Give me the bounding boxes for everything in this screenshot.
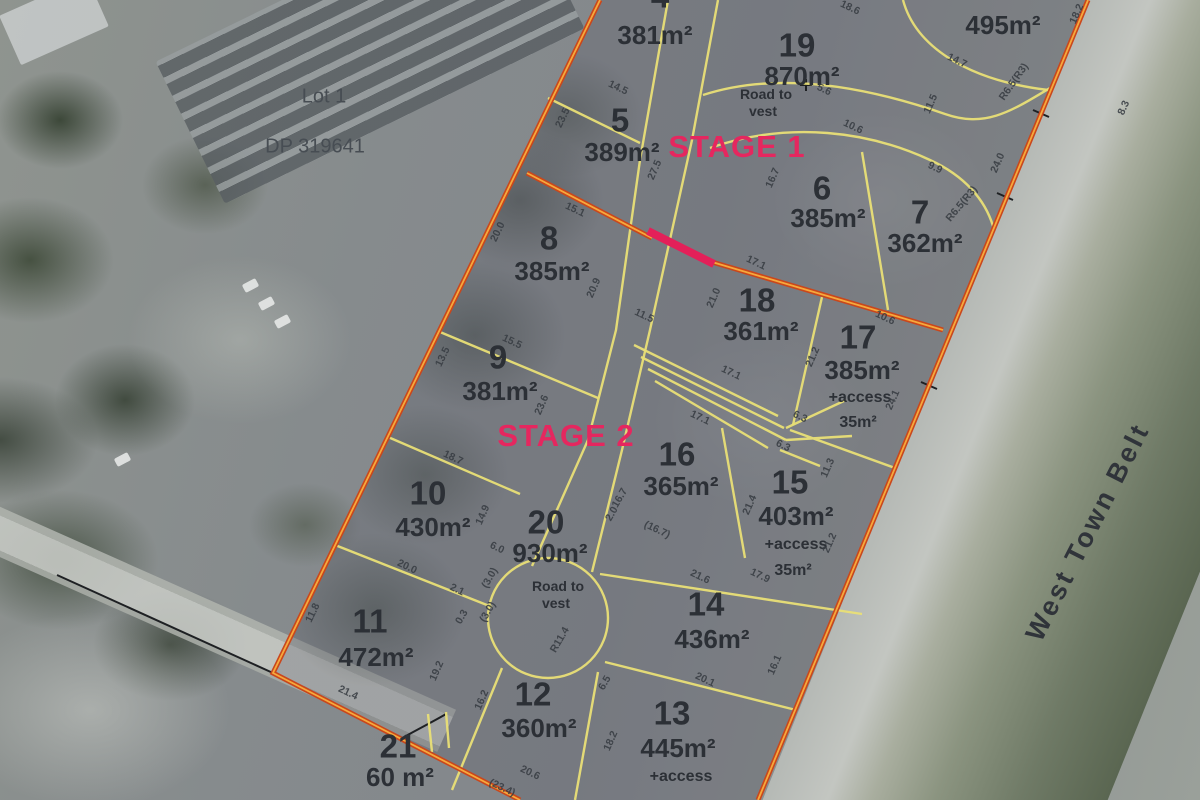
stage1-label: STAGE 1: [668, 129, 805, 165]
lot-sub-+access: +access: [650, 769, 713, 785]
lot-number-9: 9: [489, 341, 507, 374]
road-note: Road to: [532, 579, 584, 593]
dimension: 6.5: [597, 674, 613, 692]
lot-sub-+access: +access: [829, 390, 892, 406]
lot-sub-35m²: 35m²: [774, 563, 811, 579]
lot-area-385m²: 385m²: [514, 258, 589, 284]
lot-number-16: 16: [659, 438, 696, 471]
lot-area-360m²: 360m²: [501, 715, 576, 741]
road-note: vest: [542, 596, 570, 610]
parcel-label-lot1: Lot 1: [302, 86, 346, 109]
lot-area-365m²: 365m²: [643, 473, 718, 499]
lot-number-18: 18: [739, 284, 776, 317]
dimension: 20.6: [519, 764, 542, 782]
subdivision-plan-screenshot: { "colors": { "stage_text": "#e5275f", "…: [0, 0, 1200, 800]
lot-number-20: 20: [528, 506, 565, 539]
dimension: 21.0: [705, 287, 723, 310]
lot-area-445m²: 445m²: [640, 735, 715, 761]
dimension: (3.0): [478, 600, 498, 624]
dimension: 8.3: [1116, 99, 1132, 117]
dimension: 19.2: [428, 660, 446, 683]
lot-area-930m²: 930m²: [512, 540, 587, 566]
dimension: 17.9: [749, 567, 772, 585]
dimension: 11.5: [633, 307, 655, 325]
lot-number-19: 19: [779, 29, 816, 62]
dimension: 17.1: [720, 364, 743, 382]
lot-area-436m²: 436m²: [674, 626, 749, 652]
dimension: 0.3: [454, 608, 470, 626]
dimension: 10.6: [842, 118, 865, 136]
dimension: 21.2: [804, 346, 822, 369]
lot-number-21: 21: [380, 730, 417, 763]
dimension: R11.4: [549, 625, 572, 654]
stage2-label: STAGE 2: [497, 418, 634, 454]
lot-area-403m²: 403m²: [758, 503, 833, 529]
dimension: 21.4: [741, 494, 759, 517]
dimension: R6.5(R3): [997, 62, 1030, 103]
dimension: 21.6: [689, 568, 712, 586]
lot-number-12: 12: [515, 678, 552, 711]
dimension: 6.0: [488, 540, 506, 556]
dimension: 18.6: [839, 0, 862, 17]
lot-area-381m²: 381m²: [462, 378, 537, 404]
dimension: 14.5: [607, 79, 630, 97]
dimension: 9.9: [926, 160, 944, 176]
road-note: Road to: [740, 87, 792, 101]
lot-area-495m²: 495m²: [965, 12, 1040, 38]
dimension: 11.5: [922, 93, 940, 115]
lot-number-11: 11: [353, 605, 388, 638]
dimension: 17.1: [689, 409, 712, 427]
lot-number-10: 10: [410, 477, 447, 510]
lot-number-13: 13: [654, 697, 691, 730]
dimension: (23.4): [487, 777, 516, 798]
lot-area-430m²: 430m²: [395, 514, 470, 540]
dimension: 15.1: [564, 201, 587, 219]
lot-area-60m²: 60 m²: [366, 764, 434, 790]
lot-area-472m²: 472m²: [338, 644, 413, 670]
lot-sub-35m²: 35m²: [839, 415, 876, 431]
dimension: 21.2: [821, 532, 839, 555]
lot-number-8: 8: [540, 222, 558, 255]
lot-number-6: 6: [813, 172, 831, 205]
dimension: 20.0: [489, 221, 507, 244]
lot-number-4: 4: [651, 0, 669, 13]
lot-number-17: 17: [840, 321, 877, 354]
dimension: 13.5: [434, 346, 452, 369]
dimension: 10.6: [874, 309, 897, 327]
plan-labels-layer: 4381m²19870m²Road tovest495m²5389m²6385m…: [0, 0, 1200, 800]
dimension: 14.7: [946, 52, 969, 70]
dimension: 18.2: [1068, 3, 1086, 26]
dimension: 16.7: [764, 167, 782, 190]
lot-area-381m²: 381m²: [617, 22, 692, 48]
lot-number-7: 7: [911, 196, 929, 229]
dimension: 14.9: [474, 504, 492, 527]
dimension: 2.1: [448, 582, 466, 598]
dimension: (16.7): [642, 519, 671, 540]
dimension: 6.3: [791, 409, 809, 425]
dimension: 21.4: [337, 684, 360, 702]
lot-number-5: 5: [611, 104, 629, 137]
dimension: 18.2: [602, 730, 620, 753]
lot-area-389m²: 389m²: [584, 139, 659, 165]
dimension: 20.1: [694, 671, 717, 689]
lot-area-362m²: 362m²: [887, 230, 962, 256]
dimension: 6.3: [774, 438, 792, 454]
dimension: 11.8: [304, 602, 322, 624]
lot-area-385m²: 385m²: [824, 357, 899, 383]
dimension: 2.0: [604, 505, 620, 523]
dimension: 20.0: [396, 558, 419, 576]
lot-number-15: 15: [772, 466, 809, 499]
dimension: 16.1: [766, 654, 784, 677]
lot-sub-+access: +access: [765, 537, 828, 553]
dimension: 18.7: [442, 449, 465, 467]
dimension: (3.0): [480, 566, 500, 590]
dimension: 24.0: [989, 152, 1007, 175]
dimension: 17.1: [745, 254, 768, 272]
dimension: 16.2: [473, 689, 491, 712]
dimension: R6.5(R3): [944, 184, 979, 223]
dimension: 11.3: [819, 457, 837, 479]
lot-area-361m²: 361m²: [723, 318, 798, 344]
road-note: vest: [749, 104, 777, 118]
lot-area-385m²: 385m²: [790, 205, 865, 231]
parcel-label-dp: DP 319641: [265, 136, 365, 159]
dimension: 23.5: [554, 107, 572, 130]
lot-number-14: 14: [688, 588, 725, 621]
